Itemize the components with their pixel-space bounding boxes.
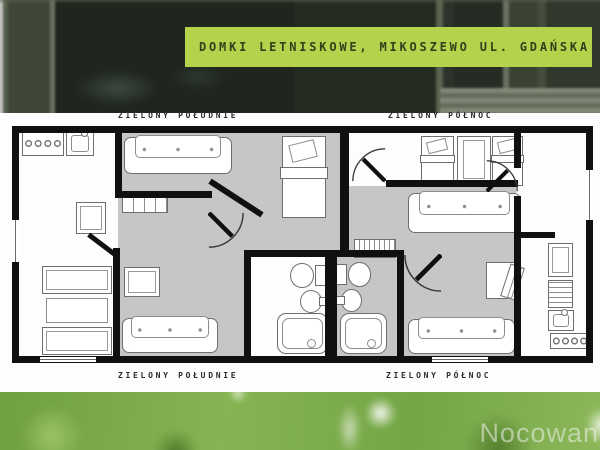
window [432,357,488,362]
door-arc-icon [208,212,244,248]
sink-icon [548,310,574,331]
drawers-icon [548,280,573,308]
slide: DOMKI LETNISKOWE, MIKOSZEWO UL. GDAŃSKA … [0,0,600,450]
wall [514,196,521,360]
wall [12,356,592,363]
wall [115,126,122,198]
wall [12,126,350,133]
door-arc-icon [404,254,442,292]
wall [12,126,19,220]
wall [397,250,404,360]
sofa-icon [122,318,218,353]
bed-h-icon [42,327,112,355]
floor-plan [0,0,600,450]
toilet-icon [288,262,326,287]
bathsink-icon [300,290,328,311]
sofa-icon [408,319,515,354]
wall [244,250,251,360]
wall [113,248,120,360]
wall [346,126,592,133]
wall [12,262,19,363]
wall [325,250,337,360]
bed-v-icon [282,136,326,218]
sink-icon [66,131,94,156]
wall [244,250,336,257]
table-icon [46,298,108,323]
shelf-icon [122,197,168,213]
sofa-icon [124,137,232,174]
bed-h-icon [42,266,112,294]
wall [586,126,593,363]
cabinet-icon [76,202,106,234]
door-arc-icon [352,148,386,182]
stove-icon [22,131,64,156]
wall [521,232,555,238]
window [12,220,19,262]
watermark: Nocowani [479,418,600,449]
label-unit-north-bottom: ZIELONY PÓŁNOC [386,371,491,380]
label-unit-south-top: ZIELONY POŁUDNIE [118,111,238,120]
desk-icon [486,262,516,299]
wall [87,233,119,259]
window [586,170,593,220]
wall [115,191,212,198]
label-unit-south-bottom: ZIELONY POŁUDNIE [118,371,238,380]
bathtub-icon [340,313,387,354]
sofa-icon [408,193,521,233]
bathsink-icon [336,289,362,310]
label-unit-north-top: ZIELONY PÓŁNOC [388,111,493,120]
toilet-icon [336,262,373,286]
wall [340,126,349,257]
cabinet-icon [124,267,160,297]
wall [330,250,404,257]
cabinet-icon [548,243,573,277]
stove-icon [550,333,590,349]
bathtub-icon [277,313,328,354]
bed-v-icon [421,136,454,186]
window [40,357,96,362]
door-arc-icon [486,160,518,192]
